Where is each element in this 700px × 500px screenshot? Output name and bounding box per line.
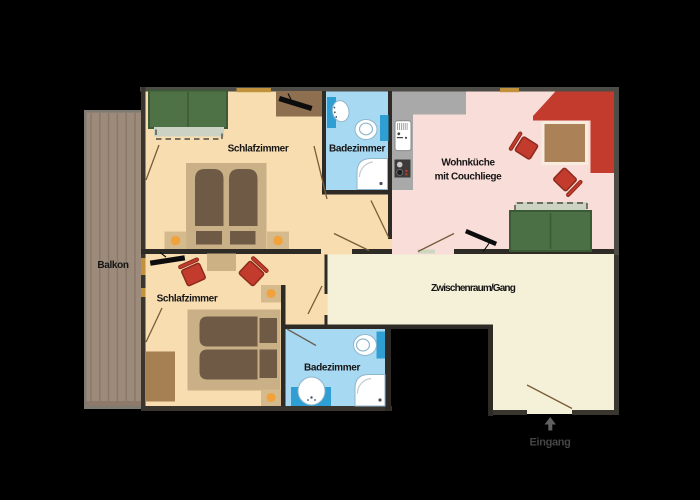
svg-text:Wohnküche: Wohnküche xyxy=(441,158,495,169)
svg-text:Badezimmer: Badezimmer xyxy=(329,144,385,155)
svg-text:Zwischenraum/Gang: Zwischenraum/Gang xyxy=(431,283,516,294)
svg-text:Schlafzimmer: Schlafzimmer xyxy=(228,144,289,155)
svg-text:mit Couchliege: mit Couchliege xyxy=(435,172,503,183)
svg-text:Balkon: Balkon xyxy=(97,260,128,271)
svg-text:Badezimmer: Badezimmer xyxy=(304,363,360,374)
svg-text:Eingang: Eingang xyxy=(530,437,571,449)
svg-text:Schlafzimmer: Schlafzimmer xyxy=(157,294,218,305)
